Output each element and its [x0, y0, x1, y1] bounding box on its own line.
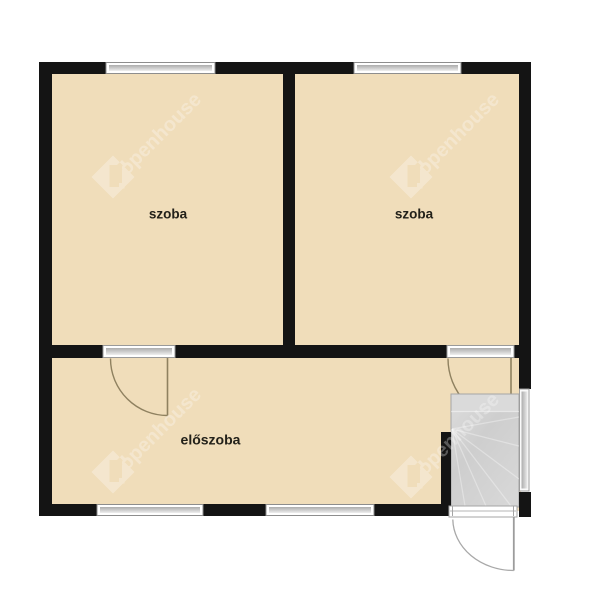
svg-text:szoba: szoba [395, 207, 434, 222]
svg-text:előszoba: előszoba [181, 432, 241, 448]
svg-text:szoba: szoba [149, 207, 188, 222]
